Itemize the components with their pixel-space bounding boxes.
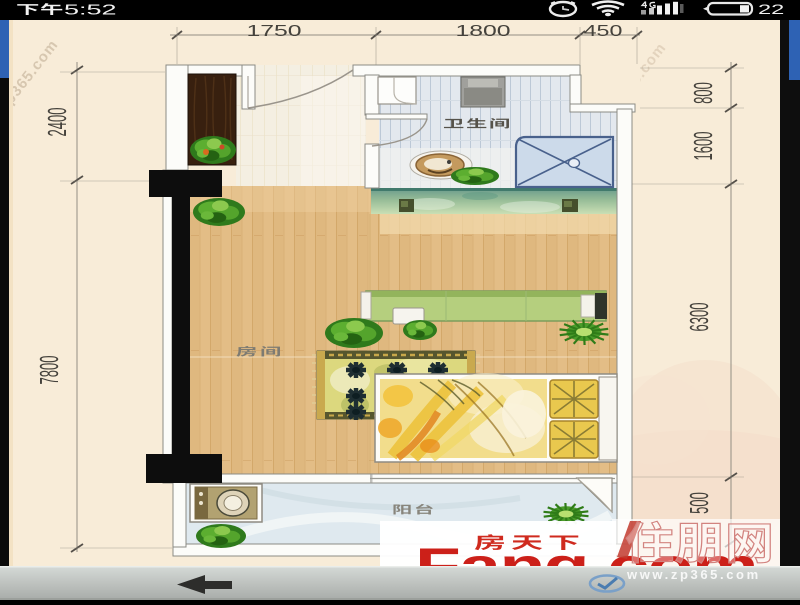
svg-text:800: 800 <box>689 82 718 104</box>
svg-text:22: 22 <box>758 3 784 18</box>
svg-text:7800: 7800 <box>35 356 64 385</box>
svg-text:450: 450 <box>584 23 623 40</box>
svg-text:www.zp365.com: www.zp365.com <box>626 567 761 582</box>
svg-text:1800: 1800 <box>455 23 510 40</box>
svg-text:5:52: 5:52 <box>64 1 117 18</box>
svg-text:500: 500 <box>685 492 714 514</box>
svg-text:1750: 1750 <box>246 23 301 40</box>
svg-text:6300: 6300 <box>685 303 714 332</box>
svg-text:1600: 1600 <box>689 132 718 161</box>
svg-text:2400: 2400 <box>43 108 72 137</box>
